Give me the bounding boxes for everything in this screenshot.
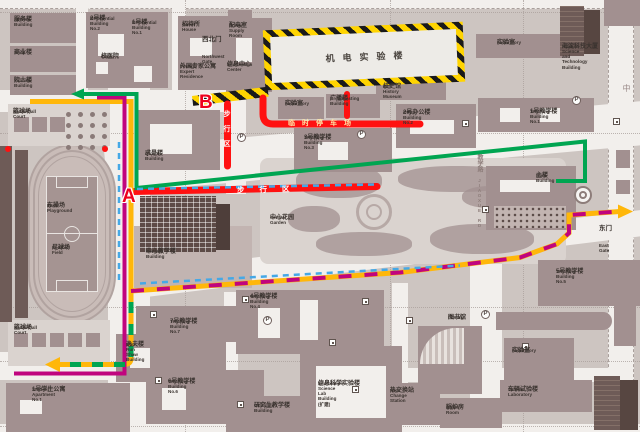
- green-arrowhead: [71, 89, 84, 100]
- parking-icon: P: [357, 130, 366, 139]
- building-name-en: Yuanshi Building: [14, 78, 32, 88]
- gate-label-east: 东门 East Gate: [599, 189, 617, 261]
- building-name-en: Foreign Expert Residence: [180, 64, 203, 79]
- building-name-en: Power Supply Room: [229, 23, 244, 38]
- building-name-en: Basketball Court: [13, 109, 36, 119]
- building-name-en: BIT History Museum: [383, 84, 402, 99]
- building-name-en: Graduate Building: [254, 403, 274, 413]
- building-name-en: Heat Change Station: [390, 388, 407, 403]
- campus-map: PPPPP服务楼Service Building商业楼Shop院士楼Yuansh…: [0, 0, 640, 432]
- building-entrance-icon: [237, 401, 244, 408]
- pedestrian-zone-label: 步行区: [237, 183, 305, 195]
- building-name-en: Shop: [14, 50, 25, 55]
- building-name-en: Laboratory: [285, 101, 309, 106]
- east-gate-icon: [574, 186, 592, 204]
- building-name-en: Basketball Court: [14, 325, 37, 335]
- building-name-en: Student Apartment No.1: [32, 387, 55, 402]
- red-dot: [102, 146, 108, 152]
- building-entrance-icon: [329, 339, 336, 346]
- building-name-en: Laboratory: [512, 348, 536, 353]
- building-name-en: Football Field: [52, 245, 70, 255]
- building-name-en: Clinic: [101, 54, 114, 59]
- building-entrance-icon: [362, 298, 369, 305]
- building-entrance-icon: [406, 317, 413, 324]
- route-yellow: [30, 102, 131, 365]
- building-name-en: Residential Building No.1: [132, 20, 157, 35]
- route-yellow-east: [131, 212, 620, 292]
- building-name-en: Information Science Lab Building (扩建): [318, 381, 343, 407]
- route-green-dashes: [62, 302, 131, 365]
- gate-label-northwest: 西北门 Northwest Gate: [202, 0, 220, 72]
- building-name-en: Information Center: [227, 62, 252, 72]
- parking-icon: P: [572, 96, 581, 105]
- building-entrance-icon: [242, 296, 249, 303]
- route-green: [84, 94, 585, 188]
- building-name-en: Broadcasting Building: [330, 96, 359, 106]
- building-name-en: Main Building: [536, 173, 554, 183]
- building-name-en: Teaching Building No.4: [250, 294, 270, 309]
- route-overlay: [0, 0, 640, 432]
- building-name-en: Central Garden: [270, 215, 286, 225]
- street-name-fragment: 中: [621, 84, 632, 92]
- parking-icon: P: [263, 316, 272, 325]
- parking-icon: P: [237, 133, 246, 142]
- building-entrance-icon: [482, 206, 489, 213]
- building-name-en: Run Run Shaw Building: [126, 342, 144, 363]
- building-name-en: Boiler Room: [446, 405, 459, 415]
- building-entrance-icon: [155, 377, 162, 384]
- building-name-en: Service Building: [14, 17, 32, 27]
- building-name-en: Central Building: [146, 249, 164, 259]
- building-name-en: Teaching Building No.3: [304, 135, 324, 150]
- building-name-en: Haidian Science and Technology Building: [562, 44, 587, 70]
- building-name-en: Residential Building No.2: [90, 16, 115, 31]
- building-name-en: Teaching Building No.7: [170, 319, 190, 334]
- yellow-arrowhead-right: [618, 205, 633, 219]
- jiaoxue-road-name: 教学路 JIAOXUE RD: [474, 154, 484, 284]
- building-name-en: Office Building No.2: [403, 110, 421, 125]
- building-name-en: Teaching Building No.5: [556, 269, 576, 284]
- building-name-en: Qiushi Building: [145, 151, 163, 161]
- building-name-en: East Playground: [47, 203, 72, 213]
- temporary-parking-label: 临时停车场: [288, 118, 358, 128]
- yellow-arrowhead-left: [45, 357, 60, 372]
- building-name-en: Guest House: [182, 22, 196, 32]
- pedestrian-zone-label-vertical: 步行区: [221, 110, 231, 155]
- building-entrance-icon: [150, 311, 157, 318]
- red-dot: [5, 146, 11, 152]
- building-name-en: Teaching Building No.6: [168, 379, 188, 394]
- marker-A: A: [122, 186, 136, 208]
- building-name-en: Teaching Building No.1: [530, 109, 550, 124]
- building-name-en: Vehicle Laboratory: [508, 387, 532, 397]
- parking-icon: P: [481, 310, 490, 319]
- building-entrance-icon: [613, 118, 620, 125]
- building-name-en: Laboratory: [497, 40, 521, 45]
- building-entrance-icon: [462, 120, 469, 127]
- building-name-en: Library: [448, 315, 464, 320]
- marker-B: B: [199, 92, 213, 114]
